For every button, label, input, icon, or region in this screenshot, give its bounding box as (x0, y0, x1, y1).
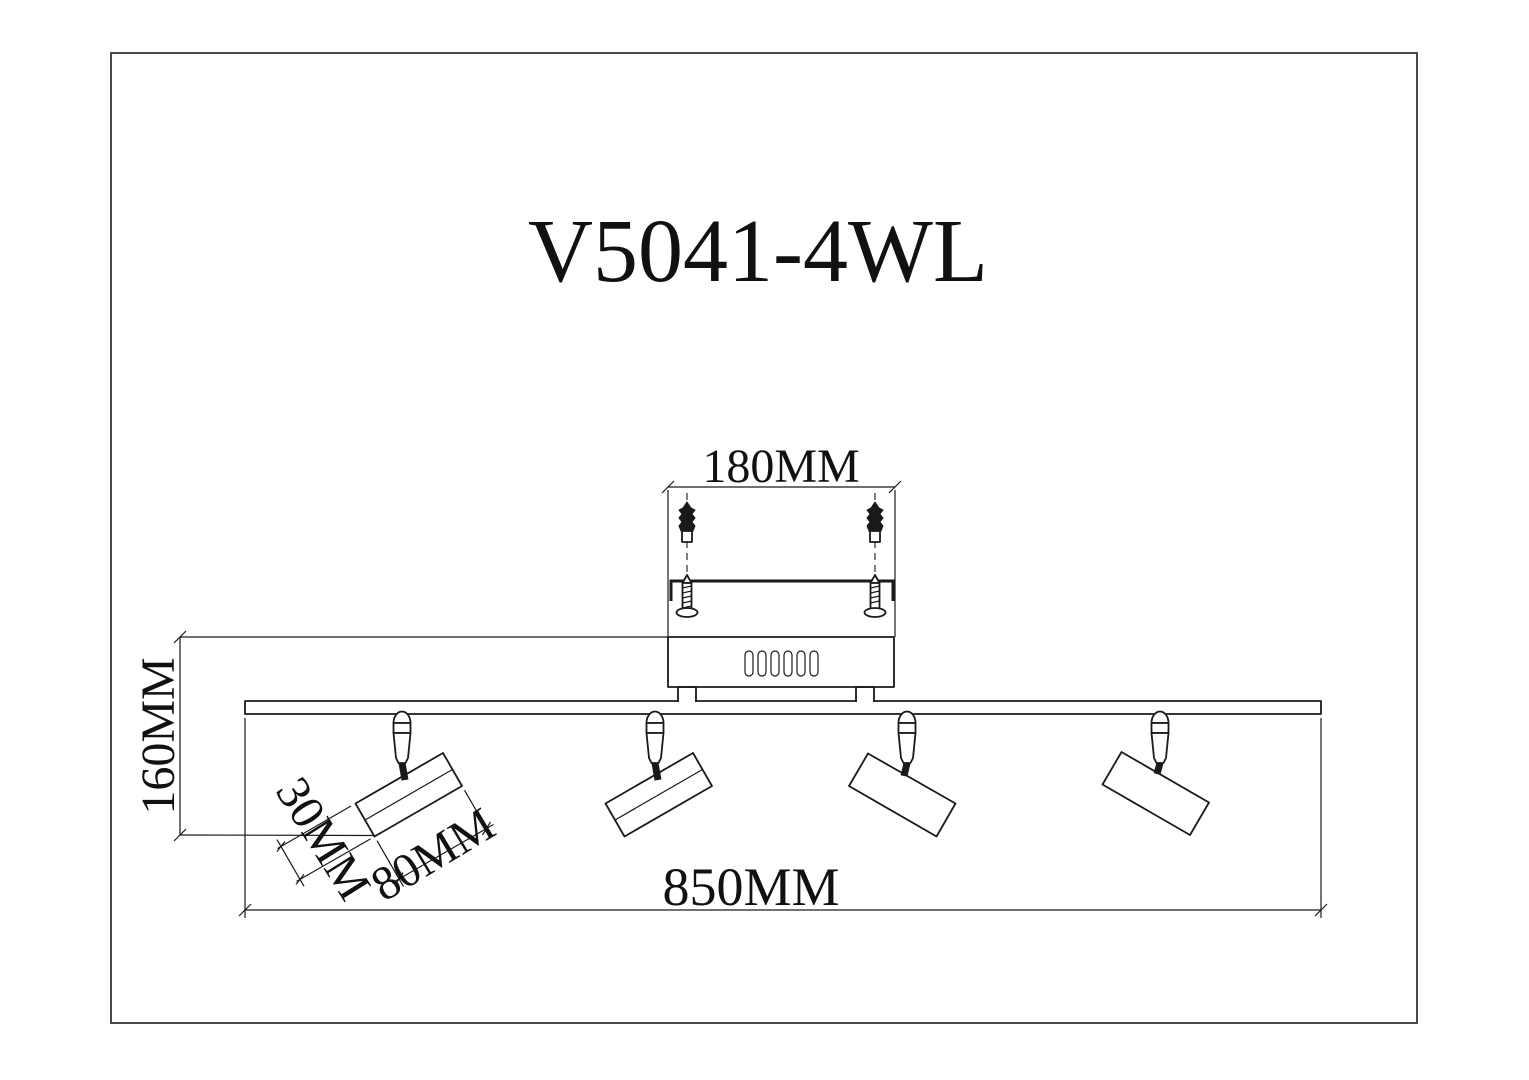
swivel-joint (904, 763, 907, 776)
dim-tick (277, 842, 285, 852)
swivel-joint (402, 763, 405, 780)
mounting-bracket (671, 581, 893, 601)
dim-label-160mm: 160MM (132, 657, 185, 814)
stem-collar (899, 723, 916, 733)
dim-label-180mm: 180MM (702, 440, 859, 493)
wall-anchor-icon-right (867, 502, 883, 542)
spotlight-2 (606, 712, 713, 837)
stem-body (647, 733, 664, 763)
junction-box-body (668, 637, 894, 687)
spotlight-4 (1103, 712, 1210, 836)
stem-body (394, 733, 411, 763)
dimension-180mm: 180MM (662, 440, 901, 637)
swivel-joint (1157, 763, 1160, 774)
dim-label-30mm: 30MM (265, 768, 381, 909)
stem-collar (1152, 723, 1169, 733)
stem-body (1152, 733, 1169, 763)
spotlight-3 (849, 712, 956, 854)
wall-anchor-icon-left (679, 502, 695, 542)
mounting-hardware (671, 493, 893, 617)
stem-collar (394, 723, 411, 733)
dim-tick (296, 874, 304, 884)
dimension-30mm: 30MM (265, 768, 381, 909)
spotlight-head (849, 754, 956, 837)
product-model-title: V5041-4WL (528, 202, 988, 301)
dim-label-850mm: 850MM (662, 857, 839, 917)
technical-drawing-page: V5041-4WL 180MM (0, 0, 1529, 1080)
stem-body (899, 733, 916, 763)
vent-slots (745, 651, 818, 676)
junction-box (668, 637, 894, 687)
swivel-joint (655, 763, 658, 780)
stem-collar (647, 723, 664, 733)
spotlight-head (1103, 752, 1210, 835)
